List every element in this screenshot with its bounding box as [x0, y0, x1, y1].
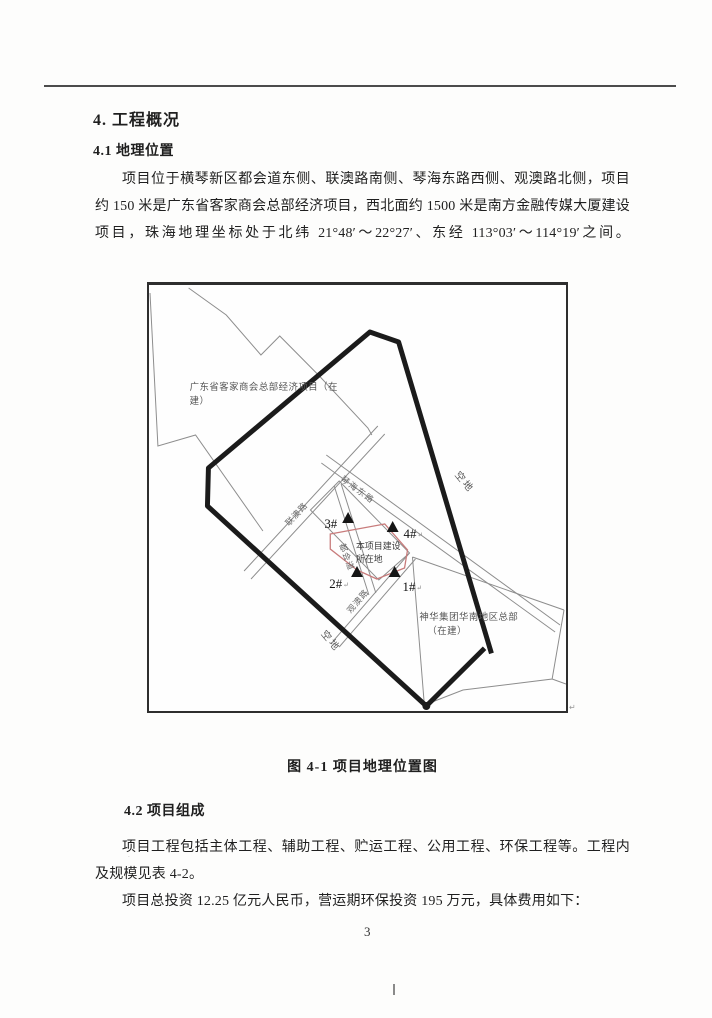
road-label-lianao: 联澳路 — [283, 500, 309, 528]
marker-label-4: 4# — [404, 526, 417, 541]
marker-label-3: 3# — [324, 516, 337, 531]
marker-label-1: 1# — [403, 579, 416, 594]
site-label-line1: 本项目建设 — [356, 540, 401, 551]
header-rule — [44, 85, 676, 87]
marker-triangle-4 — [387, 521, 399, 532]
parcel-nw-outline — [189, 288, 372, 435]
footer-tick-mark — [393, 984, 395, 995]
figure-corner-return-mark: ↵ — [569, 703, 576, 712]
figure-caption: 图 4-1 项目地理位置图 — [95, 756, 630, 776]
section-heading: 4. 工程概况 — [93, 106, 180, 130]
return-mark-1: ↵ — [416, 584, 422, 592]
paragraph-1-line-2: 约 150 米是广东省客家商会总部经济项目，西北面约 1500 米是南方金融传媒… — [95, 198, 630, 216]
vacant-land-label-bottom: 空地 — [318, 627, 343, 654]
paragraph-1-line-3: 项目，珠海地理坐标处于北纬 21°48′～22°27′、东经 113°03′～1… — [95, 225, 630, 243]
page-number: 3 — [364, 924, 371, 940]
location-map-figure: 3# 4# 2# 1# ↵ ↵ ↵ 广东省客家商会总部经济项目（在 建） 本项目… — [147, 282, 568, 713]
parcel-nw-label-line2: 建） — [190, 395, 210, 407]
road-label-guanao: 观澳路 — [345, 587, 371, 615]
boundary-corner-node — [422, 702, 430, 710]
paragraph-1-line-1: 项目位于横琴新区都会道东侧、联澳路南侧、琴海东路西侧、观澳路北侧，项目北面 — [122, 171, 630, 189]
parcel-se-label-line1: 神华集团华南地区总部 — [419, 611, 518, 623]
vacant-land-label-right: 空地 — [452, 468, 477, 495]
subsection-heading-4-1: 4.1 地理位置 — [93, 140, 174, 160]
return-mark-2: ↵ — [343, 581, 349, 589]
parcel-nw-label-line1: 广东省客家商会总部经济项目（在 — [190, 381, 338, 393]
subsection-heading-4-2: 4.2 项目组成 — [124, 800, 205, 820]
marker-label-2: 2# — [329, 576, 342, 591]
paragraph-3: 项目总投资 12.25 亿元人民币，营运期环保投资 195 万元，具体费用如下： — [122, 893, 589, 911]
document-page: 4. 工程概况 4.1 地理位置 项目位于横琴新区都会道东侧、联澳路南侧、琴海东… — [0, 0, 712, 1018]
parcel-se-label-line2: （在建） — [427, 625, 467, 637]
paragraph-2-line-2: 及规模见表 4-2。 — [95, 866, 203, 884]
marker-triangle-1 — [389, 566, 401, 577]
site-label-line2: 所在地 — [356, 553, 383, 564]
return-mark-4: ↵ — [417, 531, 423, 539]
paragraph-2-line-1: 项目工程包括主体工程、辅助工程、贮运工程、公用工程、环保工程等。工程内容 — [122, 839, 630, 857]
location-map: 3# 4# 2# 1# ↵ ↵ ↵ 广东省客家商会总部经济项目（在 建） 本项目… — [149, 285, 566, 711]
